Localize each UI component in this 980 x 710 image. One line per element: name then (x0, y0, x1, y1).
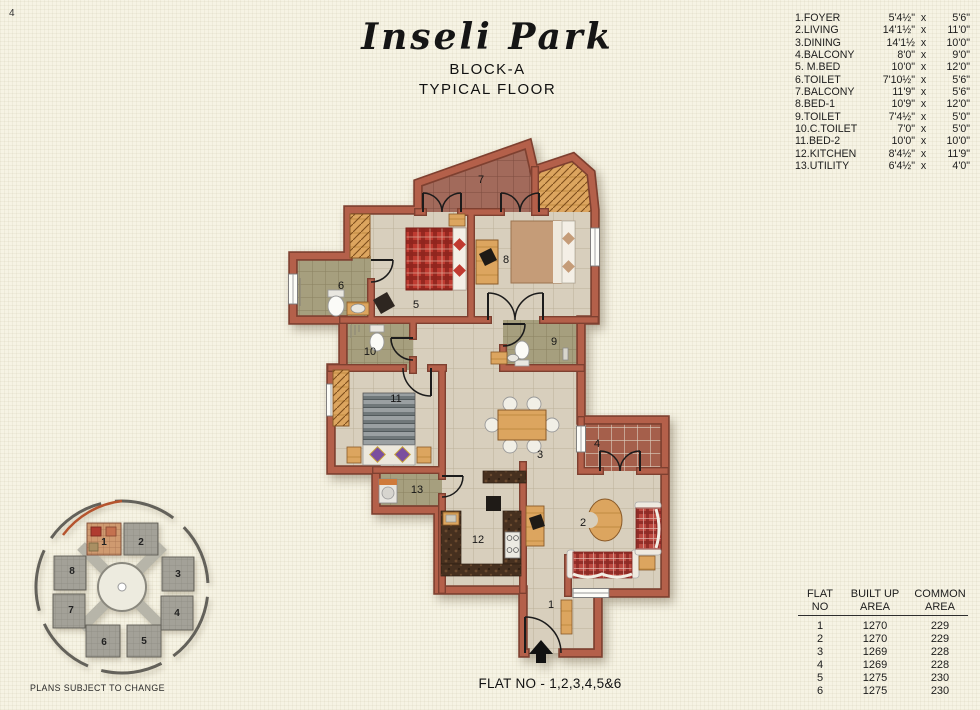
table-row: 61275230 (798, 685, 974, 698)
area-table-header: FLATNO BUILT UPAREA COMMONAREA (798, 588, 974, 613)
room-list-item: 5. M.BED10'0"x12'0" (795, 61, 979, 73)
keyplan-label-8: 8 (69, 566, 75, 577)
room-label-kitchen: 12 (472, 534, 484, 546)
keyplan-label-7: 7 (68, 605, 74, 616)
study-desk (526, 506, 545, 546)
room-label-mbed: 5 (413, 299, 419, 311)
room-dimension-list: 1.FOYER5'4½"x5'6" 2.LIVING14'1½"x11'0" 3… (795, 12, 979, 172)
room-label-bed1: 8 (503, 254, 509, 266)
room-list-item: 6.TOILET7'10½"x5'6" (795, 74, 979, 86)
bed-bed1 (511, 221, 575, 283)
room-label-balcony7: 7 (478, 174, 484, 186)
table-row: 41269228 (798, 659, 974, 672)
foyer-bench (561, 600, 572, 634)
room-list-item: 13.UTILITY6'4½"x4'0" (795, 160, 979, 172)
keyplan-label-2: 2 (138, 537, 144, 548)
disclaimer-note: PLANS SUBJECT TO CHANGE (30, 683, 165, 693)
table-row: 31269228 (798, 646, 974, 659)
table-row: 21270229 (798, 633, 974, 646)
keyplan-label-6: 6 (101, 637, 107, 648)
room-list-item: 11.BED-210'0"x10'0" (795, 135, 979, 147)
room-list-item: 4.BALCONY8'0"x9'0" (795, 49, 979, 61)
floor-name: TYPICAL FLOOR (300, 81, 675, 98)
room-label-ctoilet: 10 (364, 346, 376, 358)
flat-no-caption: FLAT NO - 1,2,3,4,5&6 (420, 676, 680, 691)
keyplan-label-4: 4 (174, 608, 180, 619)
key-plan: 1 2 3 4 5 6 7 8 (25, 487, 220, 679)
room-list-item: 10.C.TOILET7'0"x5'0" (795, 123, 979, 135)
room-list-item: 1.FOYER5'4½"x5'6" (795, 12, 979, 24)
room-list-item: 8.BED-110'9"x12'0" (795, 98, 979, 110)
floor-plan: 1 2 3 4 5 6 7 8 9 10 11 12 13 (273, 128, 723, 668)
keyplan-label-5: 5 (141, 636, 147, 647)
keyplan-label-1: 1 (101, 537, 107, 548)
room-list-item: 2.LIVING14'1½"x11'0" (795, 24, 979, 36)
central-core-dot (118, 583, 126, 591)
block-name: BLOCK-A (300, 61, 675, 78)
washing-machine (379, 479, 397, 503)
room-label-toilet9: 9 (551, 336, 557, 348)
room-list-item: 7.BALCONY11'9"x5'6" (795, 86, 979, 98)
closet-mbed (350, 214, 370, 258)
room-list-item: 9.TOILET7'4½"x5'0" (795, 111, 979, 123)
closet-bed2 (333, 370, 349, 426)
room-label-bed2: 11 (390, 393, 401, 405)
table-divider (798, 615, 968, 616)
floorplan-page: 4 Inseli Park BLOCK-A TYPICAL FLOOR 1.FO… (0, 0, 980, 710)
page-number: 4 (9, 8, 15, 19)
room-label-toilet6: 6 (338, 280, 344, 292)
room-label-dining: 3 (537, 449, 543, 461)
desk-bed1 (476, 240, 498, 284)
area-table: FLATNO BUILT UPAREA COMMONAREA 11270229 … (798, 588, 974, 699)
room-label-foyer: 1 (548, 599, 554, 611)
project-name: Inseli Park (300, 16, 675, 58)
table-row: 51275230 (798, 672, 974, 685)
room-label-living: 2 (580, 517, 586, 529)
keyplan-label-3: 3 (175, 569, 181, 580)
table-row: 11270229 (798, 620, 974, 633)
room-label-utility: 13 (411, 484, 423, 496)
room-list-item: 12.KITCHEN8'4½"x11'9" (795, 148, 979, 160)
room-list-item: 3.DINING14'1½x10'0" (795, 37, 979, 49)
title-block: Inseli Park BLOCK-A TYPICAL FLOOR (300, 16, 675, 98)
room-label-balcony4: 4 (594, 438, 600, 450)
